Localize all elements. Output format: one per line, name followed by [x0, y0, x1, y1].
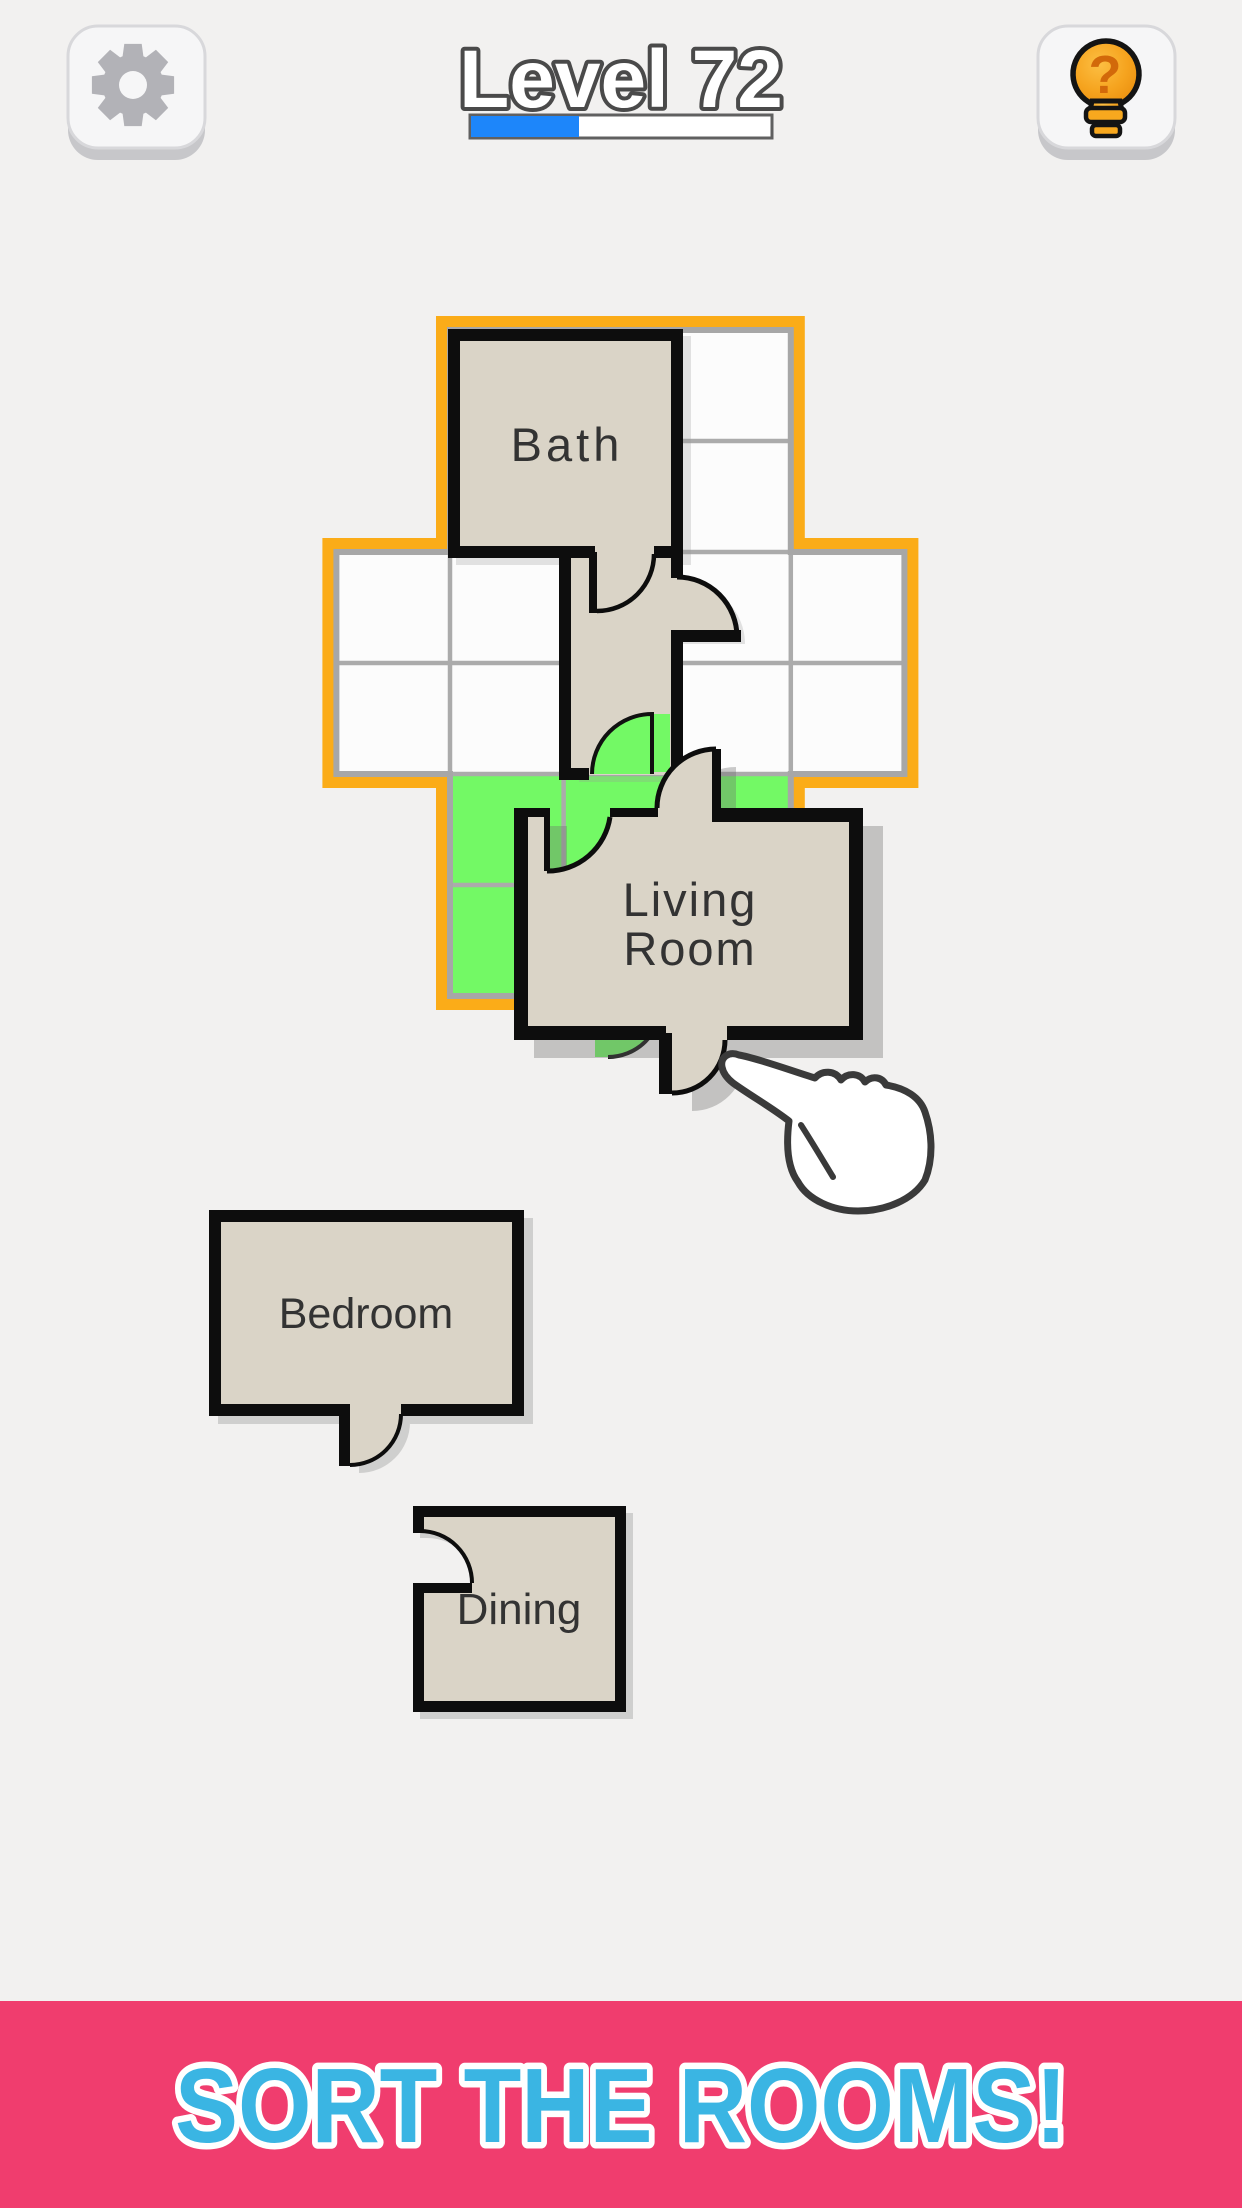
svg-text:Living: Living [623, 873, 758, 926]
svg-text:Dining: Dining [457, 1585, 582, 1634]
svg-text:Room: Room [623, 922, 756, 975]
svg-text:?: ? [1089, 45, 1122, 105]
svg-text:Bath: Bath [511, 418, 624, 471]
svg-text:Bedroom: Bedroom [279, 1290, 453, 1338]
svg-text:SORT THE ROOMS!: SORT THE ROOMS! [175, 2047, 1067, 2165]
svg-text:Level 72: Level 72 [459, 34, 783, 125]
